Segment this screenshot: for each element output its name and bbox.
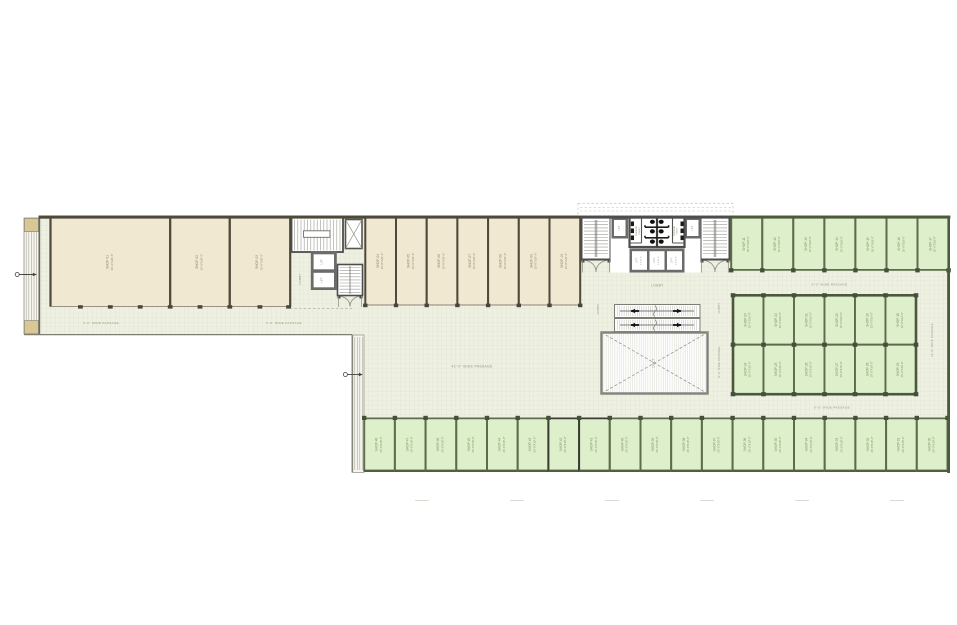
svg-text:9'-0" WIDE PASSAGE: 9'-0" WIDE PASSAGE: [83, 321, 119, 325]
svg-text:9'-0" WIDE PASSAGE: 9'-0" WIDE PASSAGE: [266, 321, 302, 325]
svg-text:39'-4"X29'-6": 39'-4"X29'-6": [110, 254, 114, 271]
svg-text:20'-0"X18'-0": 20'-0"X18'-0": [532, 436, 536, 452]
svg-text:10'-0"X16'-0": 10'-0"X16'-0": [809, 312, 813, 328]
svg-text:10'-0"X29'-6": 10'-0"X29'-6": [441, 253, 445, 270]
svg-text:20'-0"X18'-0": 20'-0"X18'-0": [839, 436, 843, 452]
svg-text:19'-6"X29'-6": 19'-6"X29'-6": [259, 254, 263, 271]
svg-text:LOBBY: LOBBY: [596, 304, 600, 315]
svg-text:10'-0"X29'-6": 10'-0"X29'-6": [534, 253, 538, 270]
svg-text:20'-0"X18'-0": 20'-0"X18'-0": [717, 436, 721, 452]
svg-text:10'-0"X29'-6": 10'-0"X29'-6": [564, 253, 568, 270]
svg-text:10'-0"X16'-0": 10'-0"X16'-0": [839, 361, 843, 377]
svg-text:LOBBY: LOBBY: [298, 273, 302, 285]
svg-text:42'-0" WIDE PASSAGE: 42'-0" WIDE PASSAGE: [451, 365, 492, 369]
svg-text:COMMON: COMMON: [636, 225, 638, 236]
svg-text:TOILET: TOILET: [677, 227, 679, 235]
svg-text:20'-0"X18'-0": 20'-0"X18'-0": [379, 436, 383, 452]
svg-text:LIFT: LIFT: [320, 277, 324, 283]
svg-text:LIFT: LIFT: [691, 225, 694, 231]
svg-text:20'-0"X18'-0": 20'-0"X18'-0": [410, 436, 414, 452]
svg-text:20'-0"X18'-0": 20'-0"X18'-0": [686, 436, 690, 452]
svg-text:9'-0" WIDE PASSAGE: 9'-0" WIDE PASSAGE: [812, 283, 848, 287]
svg-text:LOBBY: LOBBY: [717, 303, 721, 314]
svg-text:20'-0"X18'-0": 20'-0"X18'-0": [901, 436, 905, 452]
svg-text:20'-0"X18'-0": 20'-0"X18'-0": [933, 236, 937, 252]
svg-text:20'-0"X18'-0": 20'-0"X18'-0": [778, 436, 782, 452]
svg-text:LOBBY: LOBBY: [651, 284, 664, 288]
svg-text:10'-0"X16'-0": 10'-0"X16'-0": [870, 312, 874, 328]
svg-text:10'-0"X16'-0": 10'-0"X16'-0": [900, 312, 904, 328]
svg-text:20'-0"X18'-0": 20'-0"X18'-0": [594, 436, 598, 452]
svg-text:LIFT: LIFT: [618, 225, 621, 231]
svg-text:20'-0"X18'-0": 20'-0"X18'-0": [440, 436, 444, 452]
svg-text:20'-0"X18'-0": 20'-0"X18'-0": [625, 436, 629, 452]
svg-text:10'-0"X16'-0": 10'-0"X16'-0": [748, 361, 752, 377]
svg-text:20'-0"X18'-0": 20'-0"X18'-0": [747, 436, 751, 452]
svg-text:10'-0"X16'-0": 10'-0"X16'-0": [778, 361, 782, 377]
svg-text:20'-0"X18'-0": 20'-0"X18'-0": [563, 436, 567, 452]
svg-text:10'-0"X29'-6": 10'-0"X29'-6": [380, 253, 384, 270]
svg-text:TOILET: TOILET: [639, 227, 641, 235]
svg-text:11'-0" WIDE PASSAGE: 11'-0" WIDE PASSAGE: [930, 323, 934, 357]
svg-text:10'-0"X16'-0": 10'-0"X16'-0": [778, 312, 782, 328]
svg-text:20'-0"X18'-0": 20'-0"X18'-0": [471, 436, 475, 452]
svg-text:10'-0"X16'-0": 10'-0"X16'-0": [870, 361, 874, 377]
svg-text:20'-0"X18'-0": 20'-0"X18'-0": [932, 436, 936, 452]
svg-text:10'-0"X16'-0": 10'-0"X16'-0": [900, 361, 904, 377]
svg-text:20'-0"X18'-0": 20'-0"X18'-0": [839, 236, 843, 252]
svg-text:10'-0"X29'-6": 10'-0"X29'-6": [503, 253, 507, 270]
svg-text:LIFT: LIFT: [671, 257, 674, 263]
svg-text:6'-6"X5'-6": 6'-6"X5'-6": [658, 256, 660, 265]
svg-text:20'-0"X18'-0": 20'-0"X18'-0": [809, 436, 813, 452]
svg-text:LIFT: LIFT: [320, 259, 324, 265]
svg-text:10'-0"X16'-0": 10'-0"X16'-0": [748, 312, 752, 328]
svg-text:6'-6"X5'-6": 6'-6"X5'-6": [675, 256, 677, 265]
svg-text:10'-0"X16'-0": 10'-0"X16'-0": [809, 361, 813, 377]
svg-text:COMMON: COMMON: [674, 225, 676, 236]
svg-text:9'-0" WIDE PASSAGE: 9'-0" WIDE PASSAGE: [717, 346, 721, 377]
svg-text:6'-6"X5'-6": 6'-6"X5'-6": [640, 256, 642, 265]
svg-text:9'-0" WIDE PASSAGE: 9'-0" WIDE PASSAGE: [814, 405, 850, 409]
svg-text:20'-0"X18'-0": 20'-0"X18'-0": [655, 436, 659, 452]
svg-text:19'-6"X29'-6": 19'-6"X29'-6": [199, 254, 203, 271]
svg-text:DUCT: DUCT: [652, 359, 656, 368]
svg-text:LIFT: LIFT: [653, 257, 656, 263]
svg-text:20'-0"X18'-0": 20'-0"X18'-0": [808, 236, 812, 252]
svg-text:10'-0"X16'-0": 10'-0"X16'-0": [839, 312, 843, 328]
svg-text:10'-0"X29'-6": 10'-0"X29'-6": [411, 253, 415, 270]
svg-text:20'-0"X18'-0": 20'-0"X18'-0": [777, 236, 781, 252]
svg-text:20'-0"X18'-0": 20'-0"X18'-0": [502, 436, 506, 452]
svg-text:20'-0"X18'-0": 20'-0"X18'-0": [870, 436, 874, 452]
svg-text:20'-0"X18'-0": 20'-0"X18'-0": [870, 236, 874, 252]
svg-text:10'-0"X29'-6": 10'-0"X29'-6": [472, 253, 476, 270]
svg-text:20'-0"X18'-0": 20'-0"X18'-0": [901, 236, 905, 252]
svg-text:20'-0"X18'-0": 20'-0"X18'-0": [746, 236, 750, 252]
svg-text:LIFT: LIFT: [636, 257, 639, 263]
